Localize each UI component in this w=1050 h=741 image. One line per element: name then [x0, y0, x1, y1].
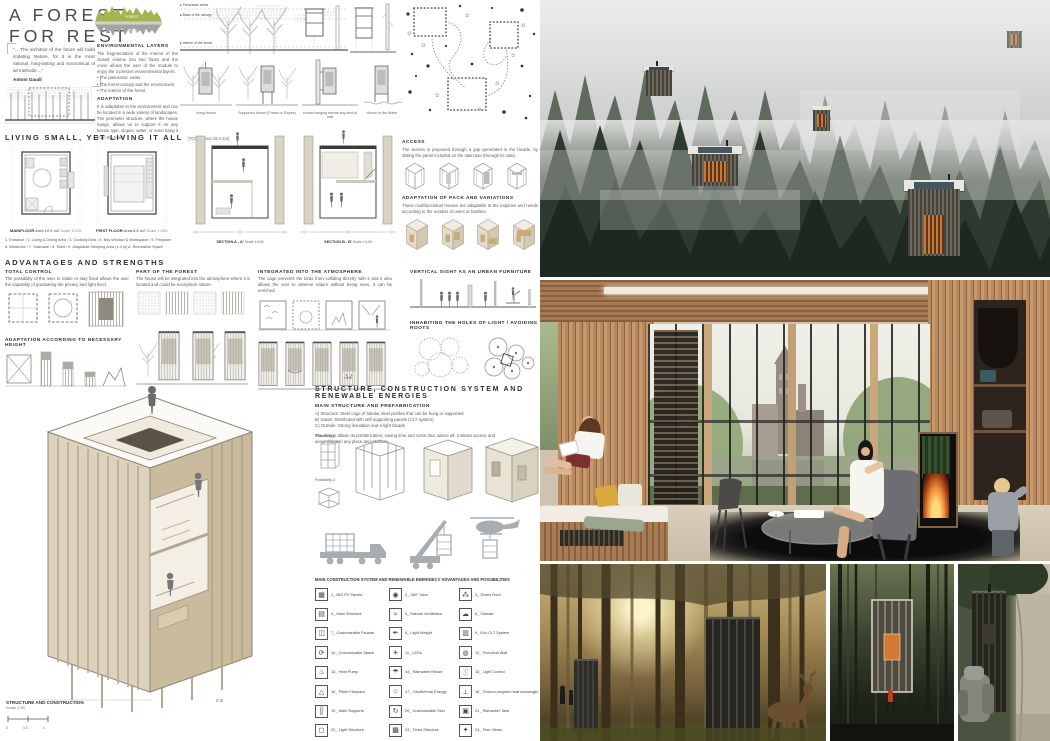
photo-sunlit-forest	[540, 564, 826, 741]
legend-item-icon: ░	[459, 666, 472, 679]
variant-supported: Supported House (Forest or Slopes)	[236, 58, 298, 120]
legend-item-icon: ⊥	[459, 685, 472, 698]
legend-item-label: 24_ Free Views	[475, 728, 502, 732]
section-b-drawing	[298, 128, 398, 240]
variant-wall: House hanging beside any kind of wall	[302, 58, 358, 120]
dotted-site-map	[402, 0, 540, 124]
quote-text: “... The architect of the future will bu…	[13, 47, 95, 73]
variant-hung: Hung House	[180, 58, 232, 120]
gaudi-quote: “... The architect of the future will bu…	[7, 43, 101, 87]
child-figure	[980, 478, 1026, 561]
structure-stages	[352, 436, 540, 510]
legend-item-label: 19_ Main Supports	[331, 709, 364, 713]
legend-item-icon: ✦	[459, 724, 472, 737]
transport-diagrams	[318, 512, 538, 574]
height-title: ADAPTATION ACCORDING TO NECESSARY HEIGHT	[5, 338, 129, 348]
legend-item-icon: △	[315, 685, 328, 698]
axo-label: STRUCTURE AND CONSTRUCTION Scale 1:50 00…	[6, 700, 84, 730]
axonometric-cutaway	[2, 380, 308, 712]
first-floor-plan	[96, 142, 168, 226]
woman-figure	[840, 440, 930, 560]
legend-item-label: 17_ Geothermal Energy	[405, 690, 446, 694]
legend-item: ≈ 5_ Natural Ventilation	[389, 604, 459, 623]
fire	[923, 474, 949, 518]
pack-text: These multifunctional houses are adaptab…	[402, 203, 538, 215]
env-bullet-2: • The forest canopy and the environment	[97, 82, 178, 88]
legend-item: ⌂ 17_ Geothermal Energy	[389, 682, 459, 701]
legend-item-icon: ↻	[389, 705, 402, 718]
legend-item: ◍ 12_ Technical Wall	[459, 643, 540, 662]
cabin-4	[908, 180, 960, 258]
adaptation-title: ADAPTATION	[97, 97, 178, 102]
legend-item-label: 21_ Rainwater Tank	[475, 709, 509, 713]
fireplace	[918, 432, 958, 528]
atmosphere-text: The cage prevents the birds from collidi…	[258, 276, 392, 295]
structure-sub1: MAIN STRUCTURE AND PREFABRICATION	[315, 404, 539, 409]
hanging-coats	[978, 308, 1018, 368]
forest-part-text: The house will be integrated into the at…	[136, 276, 250, 288]
possibility2-sketch	[315, 484, 343, 510]
render-interior	[540, 280, 1050, 561]
living-title: LIVING SMALL, YET LIVING IT ALL	[5, 133, 183, 142]
legend-item-icon: ≈	[389, 608, 402, 621]
layer-label-canopy: ▸ Base of the canopy	[180, 13, 212, 17]
legend-item-icon: ▥	[459, 627, 472, 640]
module-detail-sketch	[350, 2, 396, 56]
env-title: ENVIRONMENTAL LAYERS	[97, 44, 178, 49]
structure-sub2: MAIN CONSTRUCTION SYSTEM AND RENEWABLE E…	[315, 577, 510, 582]
variant-water: House in the Water	[362, 58, 402, 120]
legend-item-label: 8_ Light Weight	[405, 631, 432, 635]
access-text: The access is proposed through a gap gen…	[402, 147, 538, 159]
legend-item-label: 9_ Eco CLT System	[475, 631, 509, 635]
legend-item-icon: ✒	[389, 627, 402, 640]
legend-item: ♨ 13_ Heat Pump	[315, 663, 389, 682]
total-control-text: The possibility of the user to rotate or…	[5, 276, 129, 288]
ceiling-light-strip	[604, 287, 934, 294]
env-bullet-3: • The interior of the forest	[97, 88, 178, 94]
legend-item: ◻ 22_ Light Structure	[315, 721, 389, 740]
render-misty-forest	[540, 0, 1050, 277]
section-a-label: SECTION A - A' Scale 1/100	[190, 240, 290, 245]
possibility1-sketch	[315, 440, 343, 474]
legend-item-icon: ║	[315, 705, 328, 718]
access-title: ACCESS	[402, 140, 538, 145]
photo-forest-tower	[830, 564, 954, 741]
atmosphere-title: INTEGRATED INTO THE ATMOSPHERE	[258, 270, 392, 275]
legend-item: ☀ 11_ LEDs	[389, 643, 459, 662]
legend-item: ◫ 7_ Customizable Facade	[315, 624, 389, 643]
legend-item: ⁂ 3_ Green Roof	[459, 585, 540, 604]
legend-item-icon: ◍	[459, 646, 472, 659]
holes-title: INHABITING THE HOLES OF LIGHT / AVOIDING…	[410, 321, 538, 331]
section-b-label: SECTION B - B' Scale 1/100	[298, 240, 398, 245]
layer-label-panoramic: ▸ Panoramic views	[180, 3, 208, 7]
legend-item: ▩ 23_ Fixed Structure	[389, 721, 459, 740]
legend-item-label: 1_ BIO PV Panels	[331, 593, 362, 597]
part-of-forest-block: PART OF THE FOREST The house will be int…	[136, 270, 250, 392]
legend-item-icon: ▦	[315, 588, 328, 601]
access-block: ACCESS The access is proposed through a …	[402, 140, 538, 193]
cabin-5	[1007, 28, 1022, 48]
total-control-diagrams	[5, 290, 127, 330]
structure-line-c: C) Outside: Strong insulation and a ligh…	[315, 423, 539, 429]
legend-item-label: 3_ Green Roof	[475, 593, 501, 597]
legend-item-label: 22_ Light Structure	[331, 728, 364, 732]
cabin-2	[813, 106, 830, 131]
legend-item-label: 23_ Fixed Structure	[405, 728, 439, 732]
placement-variants-row: Hung House Supported House (Forest or Sl…	[180, 58, 396, 120]
legend-item-label: 15_ Light Control	[475, 670, 505, 674]
urban-furniture-diagram	[410, 277, 536, 313]
light-holes-diagram	[410, 333, 536, 385]
possibility2-label: Possibility 2	[315, 478, 335, 482]
legend-item: ✦ 24_ Free Views	[459, 721, 540, 740]
legend-item-label: 18_ Ground-coupled heat exchanger	[475, 690, 538, 694]
renewables-legend: ▦ 1_ BIO PV Panels ◉ 2_ 360° View ⁂ 3_ G…	[315, 585, 541, 740]
legend-item: ✒ 8_ Light Weight	[389, 624, 459, 643]
forest-towers-row	[136, 325, 248, 387]
legend-item: ▤ 4_ Main Structure	[315, 604, 389, 623]
legend-item: ⊥ 18_ Ground-coupled heat exchanger	[459, 682, 540, 701]
env-intro: The fragmentation of the interior of the…	[97, 51, 178, 76]
legend-item-icon: ☂	[389, 666, 402, 679]
legend-item-icon: ◫	[315, 627, 328, 640]
access-cubes-row	[402, 162, 538, 193]
closet	[974, 300, 1026, 500]
section-a-drawing	[190, 128, 290, 240]
cabin-1	[646, 66, 672, 96]
legend-item: ☁ 6_ Climate	[459, 604, 540, 623]
legend-item-label: 4_ Main Structure	[331, 612, 362, 616]
legend-item: ☂ 14_ Rainwater Reuse	[389, 663, 459, 682]
photo-lakeside-tower	[958, 564, 1050, 741]
legend-item: ↻ 20_ Customizable Skin	[389, 701, 459, 720]
legend-item: ◉ 2_ 360° View	[389, 585, 459, 604]
forest-elevation-sketch	[3, 83, 97, 125]
main-floor-plan	[10, 142, 82, 226]
legend-item-icon: ▩	[389, 724, 402, 737]
axo-dim-note: 2 m	[216, 698, 223, 703]
legend-item: ▥ 9_ Eco CLT System	[459, 624, 540, 643]
legend-item: ⟳ 10_ Customizable Space	[315, 643, 389, 662]
legend-item-label: 20_ Customizable Skin	[405, 709, 445, 713]
legend-item-icon: ⟳	[315, 646, 328, 659]
legend-item-label: 16_ Pellet Fireplace	[331, 690, 365, 694]
pack-cubes-row	[402, 218, 538, 254]
legend-item-icon: ◉	[389, 588, 402, 601]
structure-title: STRUCTURE, CONSTRUCTION SYSTEM AND RENEW…	[315, 386, 539, 400]
legend-item: ║ 19_ Main Supports	[315, 701, 389, 720]
legend-item-icon: ☀	[389, 646, 402, 659]
vertical-sight-block: VERTICAL SIGHT AS AN URBAN FURNITURE INH…	[410, 270, 538, 390]
forest-part-title: PART OF THE FOREST	[136, 270, 250, 275]
cage-diagrams-top	[258, 297, 390, 333]
legend-item-icon: ▤	[315, 608, 328, 621]
cabin-3	[692, 146, 738, 184]
first-floor-label: FIRST FLOOR Area 8,8 m2 Scale 1/100	[96, 228, 168, 233]
texture-squares	[136, 290, 248, 318]
legend-item-icon: ⌂	[389, 685, 402, 698]
pack-title: ADAPTATION OF PACK AND VARIATIONS	[402, 196, 538, 201]
legend-item-label: 2_ 360° View	[405, 593, 428, 597]
total-control-block: TOTAL CONTROL The possibility of the use…	[5, 270, 129, 395]
atmosphere-block: INTEGRATED INTO THE ATMOSPHERE The cage …	[258, 270, 392, 397]
histogram-rest-label: REST	[128, 29, 137, 33]
girl-figure	[558, 416, 628, 516]
legend-item: ▣ 21_ Rainwater Tank	[459, 701, 540, 720]
legend-item-label: 5_ Natural Ventilation	[405, 612, 442, 616]
legend-item-label: 11_ LEDs	[405, 651, 422, 655]
legend-item-label: 7_ Customizable Facade	[331, 631, 374, 635]
legend-item: ░ 15_ Light Control	[459, 663, 540, 682]
competition-board: A FOREST FOR REST “... The architect of …	[0, 0, 1050, 741]
total-control-title: TOTAL CONTROL	[5, 270, 129, 275]
layer-label-interior: ▸ Interior of the forest	[180, 41, 212, 45]
legend-item-icon: ▣	[459, 705, 472, 718]
forest-profile-histogram: FOREST REST	[95, 3, 162, 41]
pack-block: ADAPTATION OF PACK AND VARIATIONS These …	[402, 196, 538, 254]
legend-item-label: 12_ Technical Wall	[475, 651, 507, 655]
plan-legend-line2: 6. Wardrobe / 7. Staircase / 8. Toilet /…	[5, 245, 395, 249]
legend-item-label: 14_ Rainwater Reuse	[405, 670, 442, 674]
legend-item-label: 10_ Customizable Space	[331, 651, 374, 655]
legend-item-label: 6_ Climate	[475, 612, 494, 616]
legend-item: ▦ 1_ BIO PV Panels	[315, 585, 389, 604]
legend-item-label: 13_ Heat Pump	[331, 670, 358, 674]
possibility1-label: Possibility 1	[315, 434, 335, 438]
canopy-layers-diagram	[180, 2, 348, 56]
legend-item-icon: ◻	[315, 724, 328, 737]
legend-item-icon: ♨	[315, 666, 328, 679]
legend-item-icon: ☁	[459, 608, 472, 621]
legend-item-icon: ⁂	[459, 588, 472, 601]
legend-item: △ 16_ Pellet Fireplace	[315, 682, 389, 701]
histogram-forest-label: FOREST	[125, 15, 139, 19]
vertical-title: VERTICAL SIGHT AS AN URBAN FURNITURE	[410, 270, 538, 275]
advantages-title: ADVANTAGES AND STRENGTHS	[5, 258, 165, 267]
main-floor-label: MAINFLOOR Area 10,5 m2 Scale 1/100	[10, 228, 81, 233]
